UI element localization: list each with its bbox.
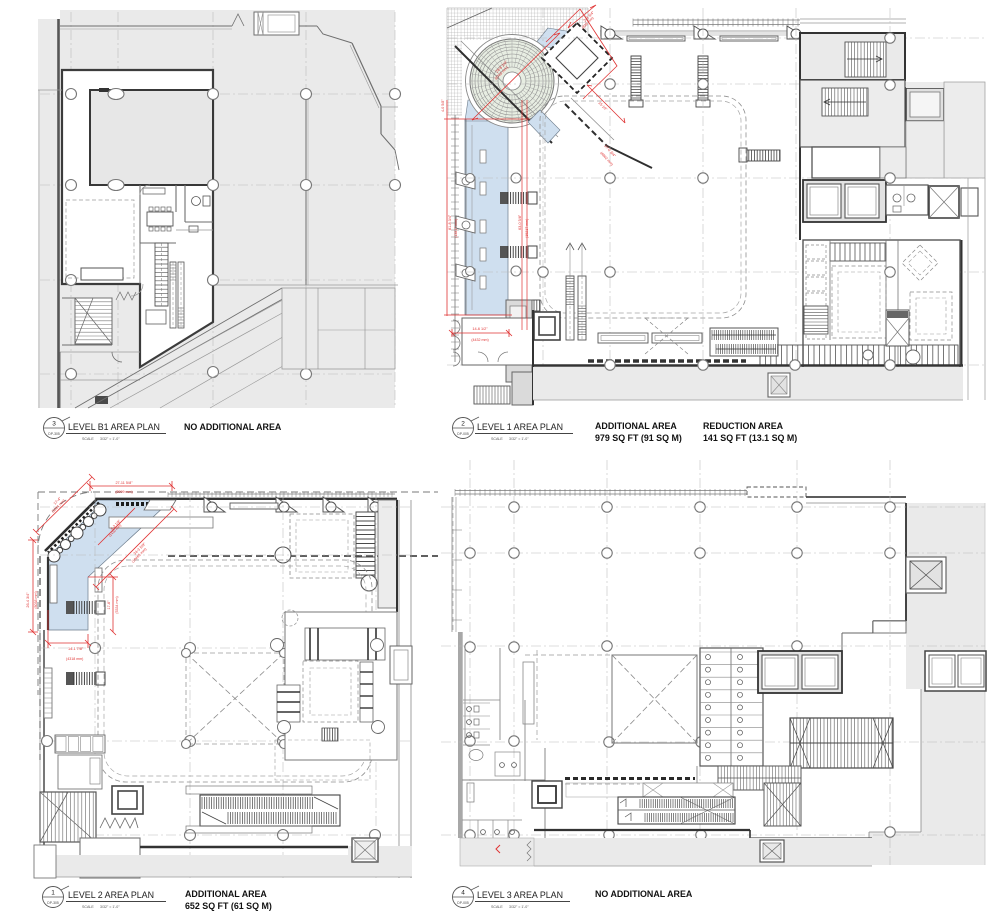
- svg-text:(4318 mm): (4318 mm): [66, 657, 83, 661]
- svg-text:SCALE: SCALE: [491, 905, 503, 909]
- svg-text:979 SQ FT (91 SQ M): 979 SQ FT (91 SQ M): [595, 433, 682, 443]
- svg-text:26-4 3/4": 26-4 3/4": [26, 592, 30, 608]
- svg-text:4: 4: [461, 890, 465, 897]
- svg-text:1: 1: [51, 890, 55, 897]
- svg-text:3/32" = 1'-0": 3/32" = 1'-0": [100, 437, 120, 441]
- svg-text:ADDITIONAL AREA: ADDITIONAL AREA: [595, 421, 677, 431]
- svg-text:4-0 5/8": 4-0 5/8": [441, 99, 445, 112]
- svg-text:3/32" = 1'-0": 3/32" = 1'-0": [509, 905, 529, 909]
- svg-text:(4432 mm): (4432 mm): [471, 338, 488, 342]
- svg-text:(8038 mm): (8038 mm): [34, 591, 38, 608]
- svg-text:ADDITIONAL AREA: ADDITIONAL AREA: [185, 889, 267, 899]
- svg-text:63-0 5/8": 63-0 5/8": [518, 214, 522, 230]
- svg-text:DP-305: DP-305: [48, 432, 60, 436]
- svg-text:652 SQ FT (61 SQ M): 652 SQ FT (61 SQ M): [185, 901, 272, 911]
- svg-text:14-1 7/8": 14-1 7/8": [68, 647, 84, 651]
- svg-text:DP-305: DP-305: [47, 901, 59, 905]
- svg-text:DP-005: DP-005: [457, 901, 469, 905]
- svg-text:2: 2: [461, 421, 465, 428]
- svg-text:(8999 mm): (8999 mm): [115, 490, 132, 494]
- svg-text:NO ADDITIONAL AREA: NO ADDITIONAL AREA: [595, 889, 693, 899]
- svg-text:REDUCTION AREA: REDUCTION AREA: [703, 421, 784, 431]
- svg-text:SCALE: SCALE: [82, 905, 94, 909]
- svg-text:SCALE: SCALE: [82, 437, 94, 441]
- svg-text:DP-005: DP-005: [457, 432, 469, 436]
- svg-text:141 SQ FT (13.1 SQ M): 141 SQ FT (13.1 SQ M): [703, 433, 797, 443]
- svg-text:3: 3: [52, 421, 56, 428]
- svg-text:27-11 5/8": 27-11 5/8": [115, 481, 133, 485]
- svg-text:SCALE: SCALE: [491, 437, 503, 441]
- svg-text:NO ADDITIONAL AREA: NO ADDITIONAL AREA: [184, 422, 282, 432]
- svg-text:LEVEL 1 AREA PLAN: LEVEL 1 AREA PLAN: [477, 422, 563, 432]
- svg-text:17-6": 17-6": [107, 600, 111, 610]
- svg-text:LEVEL B1 AREA PLAN: LEVEL B1 AREA PLAN: [68, 422, 160, 432]
- svg-text:14-6 1/2": 14-6 1/2": [472, 327, 488, 331]
- svg-text:81-8 3/4": 81-8 3/4": [448, 214, 452, 230]
- svg-text:LEVEL 3 AREA PLAN: LEVEL 3 AREA PLAN: [477, 890, 563, 900]
- svg-text:(5334 mm): (5334 mm): [115, 596, 119, 613]
- svg-text:3/32" = 1'-0": 3/32" = 1'-0": [509, 437, 529, 441]
- svg-text:(13817 mm): (13817 mm): [454, 219, 458, 238]
- svg-text:LEVEL 2 AREA PLAN: LEVEL 2 AREA PLAN: [68, 890, 154, 900]
- svg-text:(19217 mm): (19217 mm): [525, 219, 529, 238]
- svg-text:3/32" = 1'-0": 3/32" = 1'-0": [100, 905, 120, 909]
